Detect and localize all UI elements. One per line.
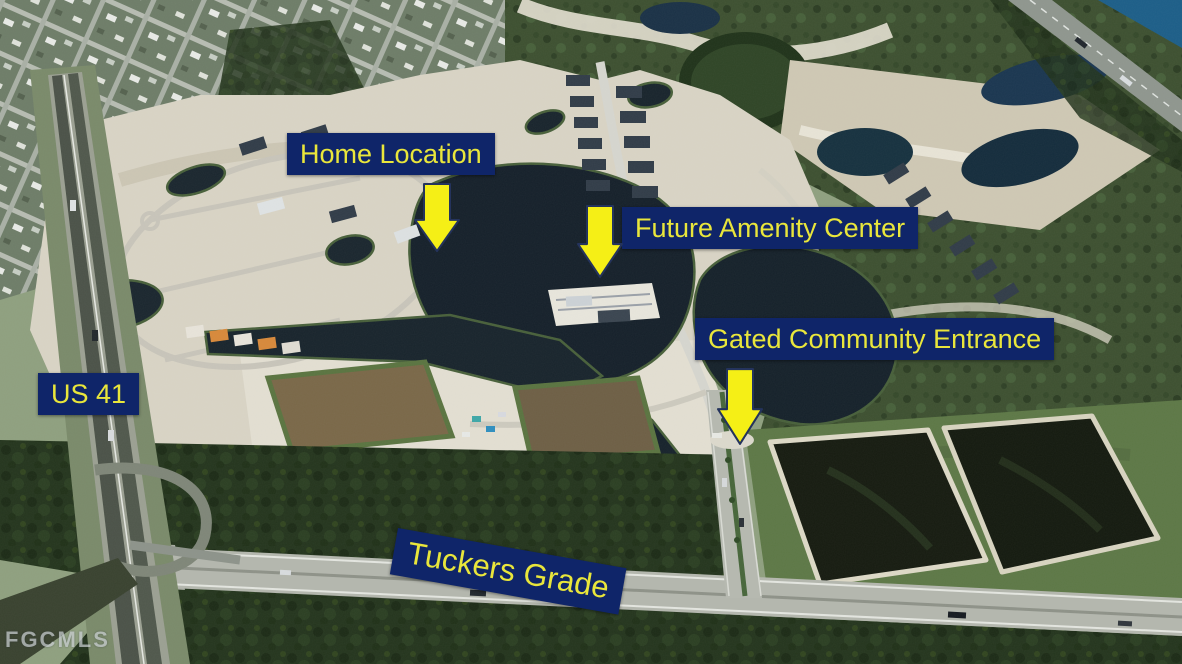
gated-community-entrance-arrow-icon (716, 368, 764, 446)
future-amenity-center-label: Future Amenity Center (622, 207, 918, 249)
gated-community-entrance-text: Gated Community Entrance (708, 324, 1041, 354)
us-41-text: US 41 (51, 379, 126, 409)
us-41-label: US 41 (38, 373, 139, 415)
mls-listing-photo: Home Location Future Amenity Center Gate… (0, 0, 1182, 664)
gated-community-entrance-label: Gated Community Entrance (695, 318, 1054, 360)
fgcmls-watermark: FGCMLS (5, 627, 110, 653)
home-location-label: Home Location (287, 133, 495, 175)
future-amenity-center-arrow-icon (576, 205, 624, 279)
home-location-text: Home Location (300, 139, 482, 169)
future-amenity-center-text: Future Amenity Center (635, 213, 905, 243)
home-location-arrow-icon (413, 183, 461, 253)
